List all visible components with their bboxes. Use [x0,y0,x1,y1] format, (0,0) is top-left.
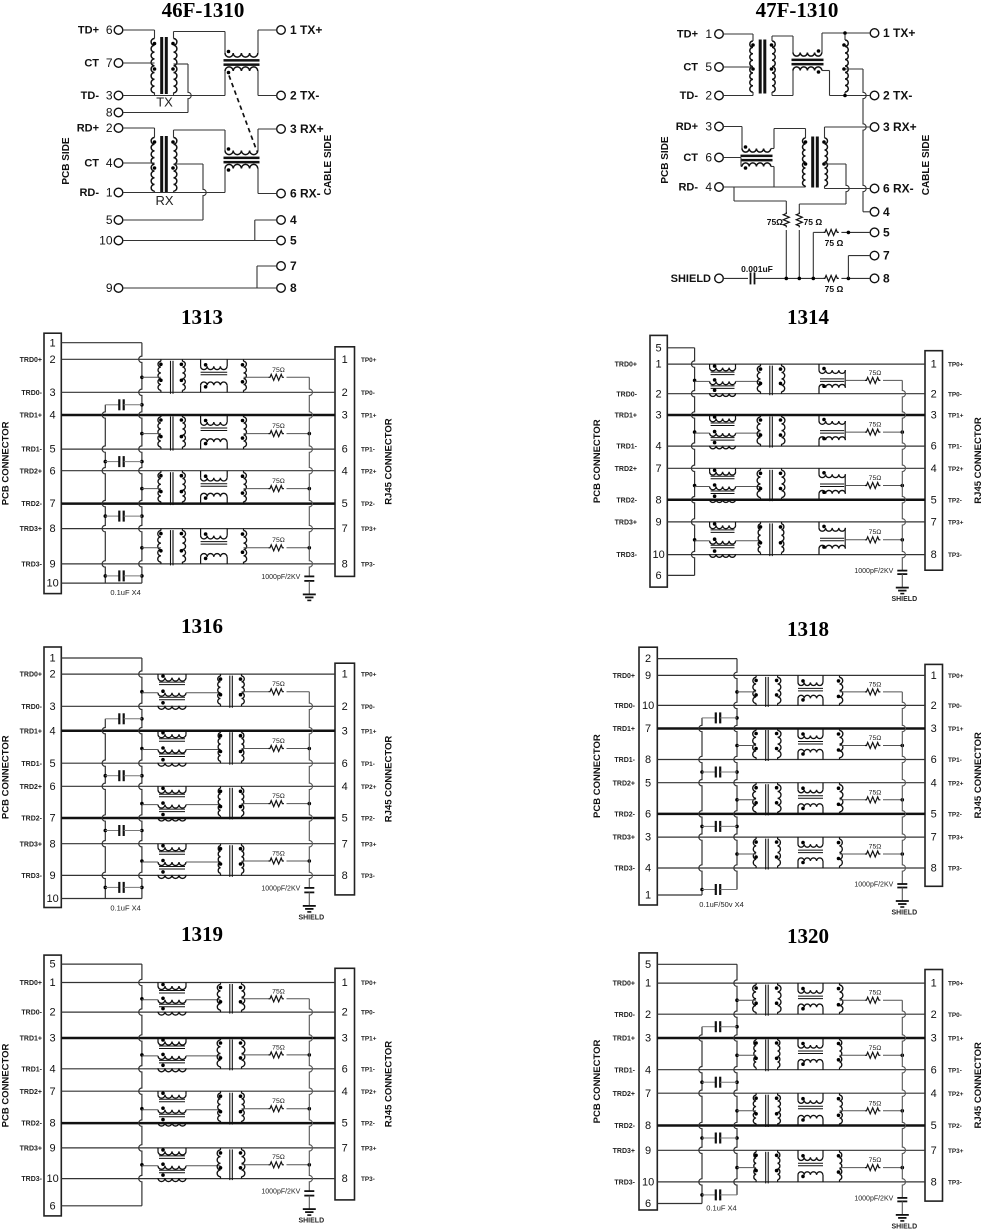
svg-text:TP2-: TP2- [361,501,375,508]
svg-text:SHIELD: SHIELD [298,914,324,921]
svg-text:TP0+: TP0+ [948,362,964,369]
svg-text:TRD1-: TRD1- [21,1066,42,1073]
svg-text:TRD0-: TRD0- [21,1010,42,1017]
svg-text:75Ω: 75Ω [272,537,285,544]
svg-text:1: 1 [342,354,348,366]
svg-text:4: 4 [645,863,651,875]
svg-text:TRD2+: TRD2+ [615,466,637,473]
svg-text:10: 10 [652,549,664,561]
svg-text:TP0-: TP0- [948,1012,962,1019]
svg-text:8: 8 [342,1173,348,1185]
svg-text:TP1+: TP1+ [361,1036,377,1043]
svg-text:7: 7 [931,1145,937,1157]
svg-text:4: 4 [656,441,662,453]
svg-text:5: 5 [342,813,348,825]
svg-text:7: 7 [931,517,937,529]
svg-text:1000pF/2KV: 1000pF/2KV [854,568,893,575]
svg-text:TP0-: TP0- [361,390,375,397]
svg-text:RJ45 CONNECTOR: RJ45 CONNECTOR [973,732,984,819]
svg-text:10: 10 [99,234,113,248]
svg-text:5: 5 [656,342,662,354]
svg-text:75Ω: 75Ω [272,1044,285,1051]
svg-text:TP0+: TP0+ [361,357,377,364]
svg-text:TRD3+: TRD3+ [20,841,42,848]
svg-text:75Ω: 75Ω [869,990,882,997]
svg-text:TP3+: TP3+ [361,1146,377,1153]
svg-text:75Ω: 75Ω [869,422,882,429]
svg-text:6: 6 [656,570,662,582]
svg-text:7: 7 [50,1086,56,1098]
svg-text:TP0-: TP0- [948,391,962,398]
svg-text:5: 5 [342,498,348,510]
svg-text:3: 3 [656,410,662,422]
svg-text:9: 9 [50,1143,56,1155]
svg-text:8: 8 [342,870,348,882]
svg-text:47F-1310: 47F-1310 [756,0,839,22]
svg-text:RD+: RD+ [676,121,698,133]
svg-text:10: 10 [642,700,654,712]
svg-text:5: 5 [342,1118,348,1130]
svg-text:6: 6 [50,781,56,793]
svg-text:1313: 1313 [181,305,223,329]
svg-text:1 TX+: 1 TX+ [290,23,322,37]
svg-text:TP2-: TP2- [361,1121,375,1128]
svg-text:7: 7 [106,56,113,70]
svg-text:1: 1 [50,653,56,665]
svg-text:TRD1+: TRD1+ [613,1036,635,1043]
svg-text:2: 2 [931,1009,937,1021]
svg-text:2: 2 [342,1007,348,1019]
svg-text:6: 6 [342,444,348,456]
svg-text:TRD1-: TRD1- [616,444,637,451]
svg-text:TP0-: TP0- [948,703,962,710]
svg-text:1000pF/2KV: 1000pF/2KV [261,574,300,581]
svg-text:TP0+: TP0+ [361,980,377,987]
svg-text:1316: 1316 [181,614,223,638]
svg-text:TRD3+: TRD3+ [613,835,635,842]
svg-text:75Ω: 75Ω [869,529,882,536]
svg-text:2: 2 [931,700,937,712]
svg-text:5: 5 [645,959,651,971]
svg-text:2: 2 [705,89,712,103]
svg-text:TRD0+: TRD0+ [613,981,635,988]
svg-text:7: 7 [50,498,56,510]
svg-text:TP3-: TP3- [361,873,375,880]
svg-text:6: 6 [50,1200,56,1212]
svg-text:46F-1310: 46F-1310 [162,0,245,22]
svg-text:CABLE SIDE: CABLE SIDE [921,134,932,195]
svg-text:PCB SIDE: PCB SIDE [660,136,671,184]
svg-text:TRD1-: TRD1- [614,757,635,764]
svg-text:4: 4 [342,781,348,793]
svg-text:2: 2 [342,387,348,399]
svg-text:TP0+: TP0+ [361,672,377,679]
svg-text:TRD1+: TRD1+ [613,726,635,733]
svg-text:TD+: TD+ [78,25,99,37]
svg-text:TP2-: TP2- [948,812,962,819]
svg-text:RX: RX [155,193,173,208]
svg-text:7: 7 [342,1143,348,1155]
svg-text:TRD2-: TRD2- [614,812,635,819]
svg-text:3: 3 [342,1033,348,1045]
svg-text:6: 6 [931,441,937,453]
svg-text:TRD3-: TRD3- [21,873,42,880]
svg-text:SHIELD: SHIELD [298,1218,324,1225]
svg-text:2: 2 [931,388,937,400]
svg-text:RJ45 CONNECTOR: RJ45 CONNECTOR [384,736,395,823]
svg-text:TP1+: TP1+ [948,726,964,733]
svg-text:1: 1 [931,359,937,371]
svg-text:TRD1+: TRD1+ [20,1036,42,1043]
svg-text:TRD0-: TRD0- [21,390,42,397]
svg-text:8: 8 [645,1120,651,1132]
svg-text:TP3+: TP3+ [948,520,964,527]
svg-text:3: 3 [50,701,56,713]
svg-text:CT: CT [683,152,698,164]
svg-text:2 TX-: 2 TX- [883,89,912,103]
svg-text:1320: 1320 [787,924,829,948]
svg-text:SHIELD: SHIELD [671,273,711,285]
svg-text:7: 7 [656,463,662,475]
svg-text:TRD0+: TRD0+ [615,362,637,369]
svg-text:6: 6 [106,23,113,37]
svg-text:8: 8 [656,494,662,506]
svg-text:9: 9 [50,870,56,882]
svg-text:TP0+: TP0+ [948,981,964,988]
svg-text:4: 4 [931,463,937,475]
svg-text:6: 6 [645,809,651,821]
svg-text:PCB CONNECTOR: PCB CONNECTOR [1,421,12,505]
svg-text:TRD2-: TRD2- [616,497,637,504]
svg-text:0.1uF X4: 0.1uF X4 [706,1204,736,1213]
svg-text:75Ω: 75Ω [869,844,882,851]
svg-text:2: 2 [656,388,662,400]
svg-text:6: 6 [931,754,937,766]
svg-text:0.1uF X4: 0.1uF X4 [110,904,140,913]
svg-text:75Ω: 75Ω [272,851,285,858]
svg-text:TRD2+: TRD2+ [20,1089,42,1096]
svg-text:CT: CT [84,58,99,70]
svg-text:TRD0-: TRD0- [21,704,42,711]
svg-text:75Ω: 75Ω [869,735,882,742]
svg-text:TP0-: TP0- [361,704,375,711]
svg-text:TRD1-: TRD1- [21,761,42,768]
svg-text:8: 8 [106,106,113,120]
svg-text:TRD0+: TRD0+ [613,673,635,680]
svg-text:75Ω: 75Ω [869,1157,882,1164]
svg-text:1: 1 [342,977,348,989]
svg-text:TRD3-: TRD3- [21,1176,42,1183]
svg-text:1: 1 [106,186,113,200]
svg-text:4: 4 [342,465,348,477]
svg-text:75Ω: 75Ω [272,367,285,374]
svg-text:TRD3+: TRD3+ [20,1146,42,1153]
svg-text:PCB CONNECTOR: PCB CONNECTOR [592,1039,603,1123]
svg-text:4: 4 [50,410,56,422]
svg-text:3 RX+: 3 RX+ [290,122,324,136]
svg-text:TD+: TD+ [677,29,698,41]
svg-text:75Ω: 75Ω [272,423,285,430]
svg-text:6 RX-: 6 RX- [290,187,321,201]
svg-text:6 RX-: 6 RX- [883,182,914,196]
svg-text:4: 4 [50,725,56,737]
svg-text:5: 5 [883,225,890,239]
svg-text:RJ45 CONNECTOR: RJ45 CONNECTOR [973,1042,984,1129]
svg-text:75Ω: 75Ω [869,370,882,377]
svg-text:TRD0-: TRD0- [614,703,635,710]
svg-text:9: 9 [645,670,651,682]
svg-text:6: 6 [645,1198,651,1210]
svg-text:7: 7 [883,249,890,263]
svg-text:1: 1 [645,890,651,902]
svg-text:8: 8 [931,1177,937,1189]
svg-text:10: 10 [46,578,58,590]
svg-text:SHIELD: SHIELD [891,910,917,917]
svg-text:75Ω: 75Ω [869,1100,882,1107]
svg-text:4: 4 [931,1088,937,1100]
svg-text:3: 3 [931,1033,937,1045]
svg-text:75Ω: 75Ω [272,1098,285,1105]
svg-text:TRD1-: TRD1- [21,447,42,454]
svg-text:8: 8 [342,559,348,571]
svg-text:1: 1 [50,337,56,349]
svg-text:RJ45 CONNECTOR: RJ45 CONNECTOR [973,417,984,504]
svg-text:CABLE SIDE: CABLE SIDE [323,134,334,195]
svg-text:2: 2 [50,1007,56,1019]
svg-text:3: 3 [50,1033,56,1045]
svg-text:TRD2-: TRD2- [21,1121,42,1128]
svg-text:5: 5 [106,213,113,227]
svg-text:TRD2+: TRD2+ [613,780,635,787]
svg-text:1318: 1318 [787,617,829,641]
svg-text:8: 8 [931,863,937,875]
svg-text:9: 9 [645,1145,651,1157]
svg-text:TRD2-: TRD2- [21,816,42,823]
svg-text:TP3-: TP3- [948,866,962,873]
svg-text:RD-: RD- [678,182,698,194]
svg-text:5: 5 [50,758,56,770]
svg-text:3: 3 [931,410,937,422]
svg-text:TP2+: TP2+ [361,1089,377,1096]
svg-text:3: 3 [342,410,348,422]
svg-text:75 Ω: 75 Ω [804,217,823,227]
svg-text:4: 4 [290,213,297,227]
svg-text:2 TX-: 2 TX- [290,89,319,103]
svg-text:TRD1+: TRD1+ [20,413,42,420]
svg-text:4: 4 [106,156,113,170]
svg-text:75Ω: 75Ω [272,1154,285,1161]
svg-text:10: 10 [642,1177,654,1189]
svg-text:1000pF/2KV: 1000pF/2KV [854,1195,893,1202]
svg-text:5: 5 [50,959,56,971]
svg-text:TRD0-: TRD0- [614,1012,635,1019]
svg-text:2: 2 [50,669,56,681]
svg-text:4: 4 [50,1063,56,1075]
svg-text:10: 10 [46,893,58,905]
svg-text:TRD0+: TRD0+ [20,980,42,987]
svg-text:RD+: RD+ [77,123,99,135]
svg-text:TP1+: TP1+ [948,413,964,420]
svg-text:75 Ω: 75 Ω [825,238,844,248]
svg-text:TP0-: TP0- [361,1010,375,1017]
svg-text:RJ45 CONNECTOR: RJ45 CONNECTOR [384,1041,395,1128]
svg-text:4: 4 [645,1064,651,1076]
svg-text:TP0+: TP0+ [948,673,964,680]
svg-text:3: 3 [342,725,348,737]
svg-text:TRD2-: TRD2- [21,501,42,508]
svg-text:CT: CT [683,62,698,74]
svg-text:TRD3-: TRD3- [614,866,635,873]
svg-text:3: 3 [106,89,113,103]
svg-text:TRD2+: TRD2+ [20,468,42,475]
svg-text:TP3-: TP3- [361,1176,375,1183]
svg-text:3: 3 [931,723,937,735]
svg-text:RD-: RD- [79,187,99,199]
svg-text:7: 7 [931,832,937,844]
svg-text:7: 7 [342,838,348,850]
svg-text:75Ω: 75Ω [272,988,285,995]
svg-text:TRD0+: TRD0+ [20,672,42,679]
svg-text:75Ω: 75Ω [272,793,285,800]
svg-text:TRD2+: TRD2+ [613,1091,635,1098]
svg-text:TP3+: TP3+ [361,841,377,848]
svg-text:CT: CT [84,158,99,170]
svg-text:TP2+: TP2+ [948,466,964,473]
svg-text:75 Ω: 75 Ω [825,284,844,294]
svg-text:5: 5 [931,1120,937,1132]
svg-text:7: 7 [50,813,56,825]
svg-text:TX: TX [156,95,173,110]
svg-text:8: 8 [645,754,651,766]
svg-text:TRD3-: TRD3- [21,562,42,569]
svg-text:TRD0+: TRD0+ [20,357,42,364]
svg-text:3: 3 [705,120,712,134]
svg-text:75Ω: 75Ω [272,478,285,485]
svg-text:1: 1 [931,670,937,682]
svg-text:5: 5 [705,60,712,74]
svg-text:9: 9 [50,559,56,571]
svg-text:6: 6 [50,465,56,477]
svg-text:8: 8 [931,549,937,561]
svg-text:75Ω: 75Ω [869,789,882,796]
svg-text:TP2+: TP2+ [948,780,964,787]
svg-text:TP1+: TP1+ [948,1036,964,1043]
svg-text:8: 8 [883,271,890,285]
svg-text:1000pF/2KV: 1000pF/2KV [261,1189,300,1196]
svg-text:7: 7 [645,723,651,735]
svg-text:1: 1 [50,977,56,989]
svg-text:TRD3+: TRD3+ [20,526,42,533]
svg-text:1000pF/2KV: 1000pF/2KV [261,885,300,892]
svg-text:1319: 1319 [181,922,223,946]
svg-text:75Ω: 75Ω [272,681,285,688]
svg-text:4: 4 [883,205,890,219]
svg-text:PCB SIDE: PCB SIDE [61,137,72,185]
svg-text:1 TX+: 1 TX+ [883,26,915,40]
svg-text:TP2+: TP2+ [361,468,377,475]
svg-text:1314: 1314 [787,305,830,329]
svg-text:TP2-: TP2- [948,1123,962,1130]
svg-text:8: 8 [50,838,56,850]
svg-text:5: 5 [931,494,937,506]
svg-text:TP2+: TP2+ [948,1091,964,1098]
svg-text:1000pF/2KV: 1000pF/2KV [854,882,893,889]
svg-text:0.1uF/50v X4: 0.1uF/50v X4 [699,900,744,909]
svg-text:TRD0-: TRD0- [616,391,637,398]
svg-text:TP3-: TP3- [948,552,962,559]
svg-text:8: 8 [290,281,297,295]
svg-text:5: 5 [290,234,297,248]
svg-text:9: 9 [656,517,662,529]
svg-text:75Ω: 75Ω [869,681,882,688]
svg-text:1: 1 [342,669,348,681]
svg-text:75Ω: 75Ω [272,738,285,745]
svg-text:TRD3-: TRD3- [614,1180,635,1187]
svg-text:SHIELD: SHIELD [891,1223,917,1230]
svg-text:1: 1 [656,359,662,371]
svg-text:TP3-: TP3- [948,1180,962,1187]
svg-text:TP1+: TP1+ [361,413,377,420]
svg-text:TRD3+: TRD3+ [613,1148,635,1155]
svg-text:TRD3+: TRD3+ [615,520,637,527]
svg-text:5: 5 [931,809,937,821]
svg-text:TP1-: TP1- [948,1067,962,1074]
svg-text:3 RX+: 3 RX+ [883,120,917,134]
svg-text:PCB CONNECTOR: PCB CONNECTOR [592,734,603,818]
svg-text:TP3-: TP3- [361,562,375,569]
svg-text:2: 2 [342,701,348,713]
svg-text:TP1-: TP1- [948,444,962,451]
svg-text:PCB CONNECTOR: PCB CONNECTOR [1,735,12,819]
svg-text:0.1uF X4: 0.1uF X4 [110,588,140,597]
svg-text:TRD1+: TRD1+ [20,728,42,735]
svg-text:TRD3-: TRD3- [616,552,637,559]
svg-text:2: 2 [645,1009,651,1021]
svg-text:7: 7 [290,259,297,273]
svg-text:TP2-: TP2- [361,816,375,823]
svg-text:2: 2 [645,653,651,665]
svg-text:2: 2 [50,354,56,366]
svg-text:TP1-: TP1- [361,761,375,768]
svg-text:TP3+: TP3+ [948,1148,964,1155]
svg-text:PCB CONNECTOR: PCB CONNECTOR [592,419,603,503]
svg-text:TRD2+: TRD2+ [20,784,42,791]
svg-text:6: 6 [342,758,348,770]
svg-text:TRD2-: TRD2- [614,1123,635,1130]
svg-text:5: 5 [50,444,56,456]
svg-text:4: 4 [342,1086,348,1098]
svg-text:TP1+: TP1+ [361,728,377,735]
svg-text:0.001uF: 0.001uF [741,264,773,274]
svg-text:7: 7 [342,523,348,535]
svg-text:TD-: TD- [81,90,100,102]
svg-text:TP1-: TP1- [361,1066,375,1073]
svg-text:TP2+: TP2+ [361,784,377,791]
svg-text:1: 1 [645,978,651,990]
svg-text:75Ω: 75Ω [869,475,882,482]
svg-text:5: 5 [645,777,651,789]
svg-text:75Ω: 75Ω [869,1045,882,1052]
svg-text:6: 6 [931,1064,937,1076]
svg-text:TP1-: TP1- [948,757,962,764]
svg-text:2: 2 [106,121,113,135]
svg-text:3: 3 [50,387,56,399]
svg-text:6: 6 [342,1063,348,1075]
svg-text:TP1-: TP1- [361,447,375,454]
svg-text:6: 6 [705,151,712,165]
svg-text:TP3+: TP3+ [948,835,964,842]
svg-text:4: 4 [705,180,712,194]
